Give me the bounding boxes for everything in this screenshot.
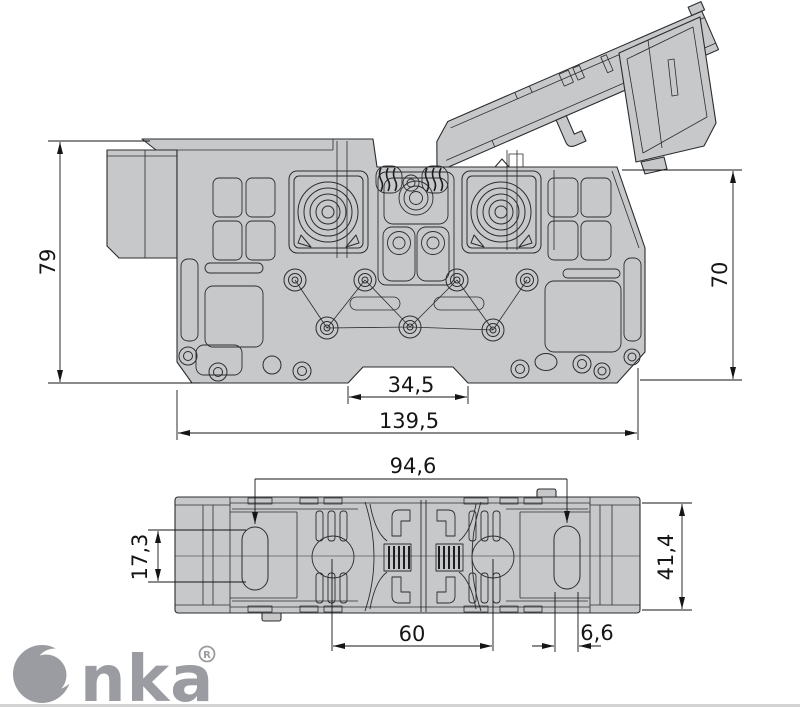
terminal-block-drawing: 79 70 34,5 139,5 94,6 17,3 41,4 60 6,6 n… [0, 0, 800, 710]
dim-depth-41-4: 41,4 [654, 534, 678, 581]
page-bottom-border [0, 704, 800, 707]
logo-wordmark: nka [80, 643, 214, 710]
dim-height-70: 70 [708, 262, 732, 289]
cover-end-cap [619, 17, 716, 162]
dim-width-139-5: 139,5 [379, 409, 439, 433]
cover-latch-hook [556, 113, 586, 149]
dim-slot-17-3: 17,3 [128, 534, 152, 581]
dim-pitch-94-6: 94,6 [390, 454, 437, 478]
technical-drawing-page: 79 70 34,5 139,5 94,6 17,3 41,4 60 6,6 n… [0, 0, 800, 710]
side-view [107, 139, 645, 383]
registered-mark-letter: R [203, 650, 211, 661]
dim-height-79: 79 [36, 249, 60, 276]
dim-notch-34-5: 34,5 [388, 373, 435, 397]
bottom-view [175, 489, 640, 621]
dim-slot-6-6: 6,6 [580, 621, 613, 645]
bottom-body [175, 497, 640, 613]
din-flange [107, 150, 177, 258]
dim-center-60: 60 [399, 622, 426, 646]
onka-logo: nka R [13, 643, 215, 710]
